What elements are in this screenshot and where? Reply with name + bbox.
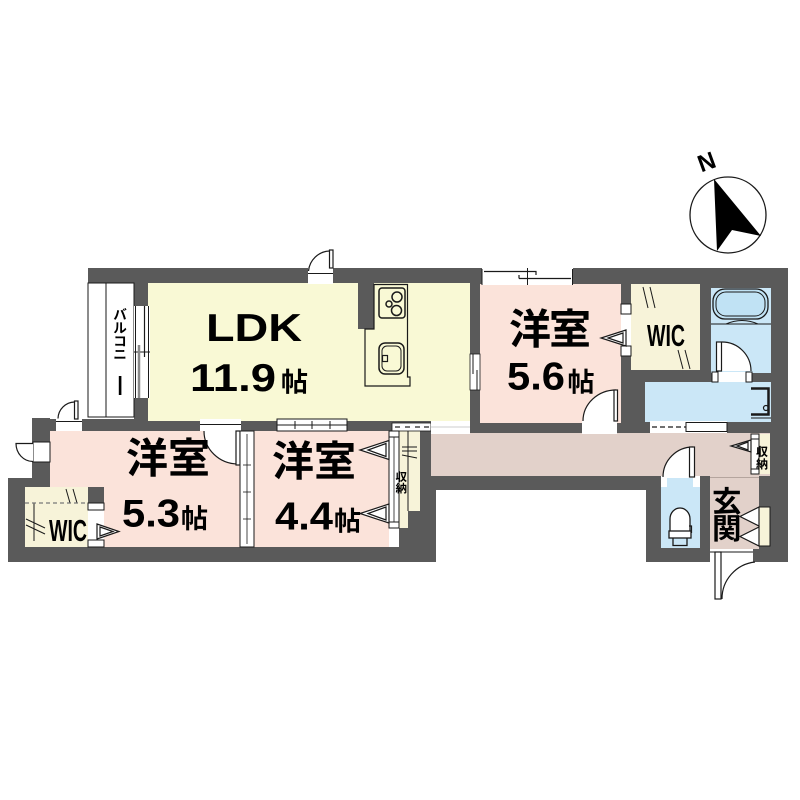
- svg-text:5.3: 5.3: [122, 493, 180, 536]
- svg-text:4.4: 4.4: [275, 496, 333, 539]
- svg-text:LDK: LDK: [206, 307, 302, 350]
- svg-text:WIC: WIC: [49, 513, 87, 548]
- svg-text:11.9: 11.9: [190, 357, 276, 400]
- svg-text:5.6: 5.6: [507, 356, 565, 399]
- svg-text:WIC: WIC: [647, 318, 685, 353]
